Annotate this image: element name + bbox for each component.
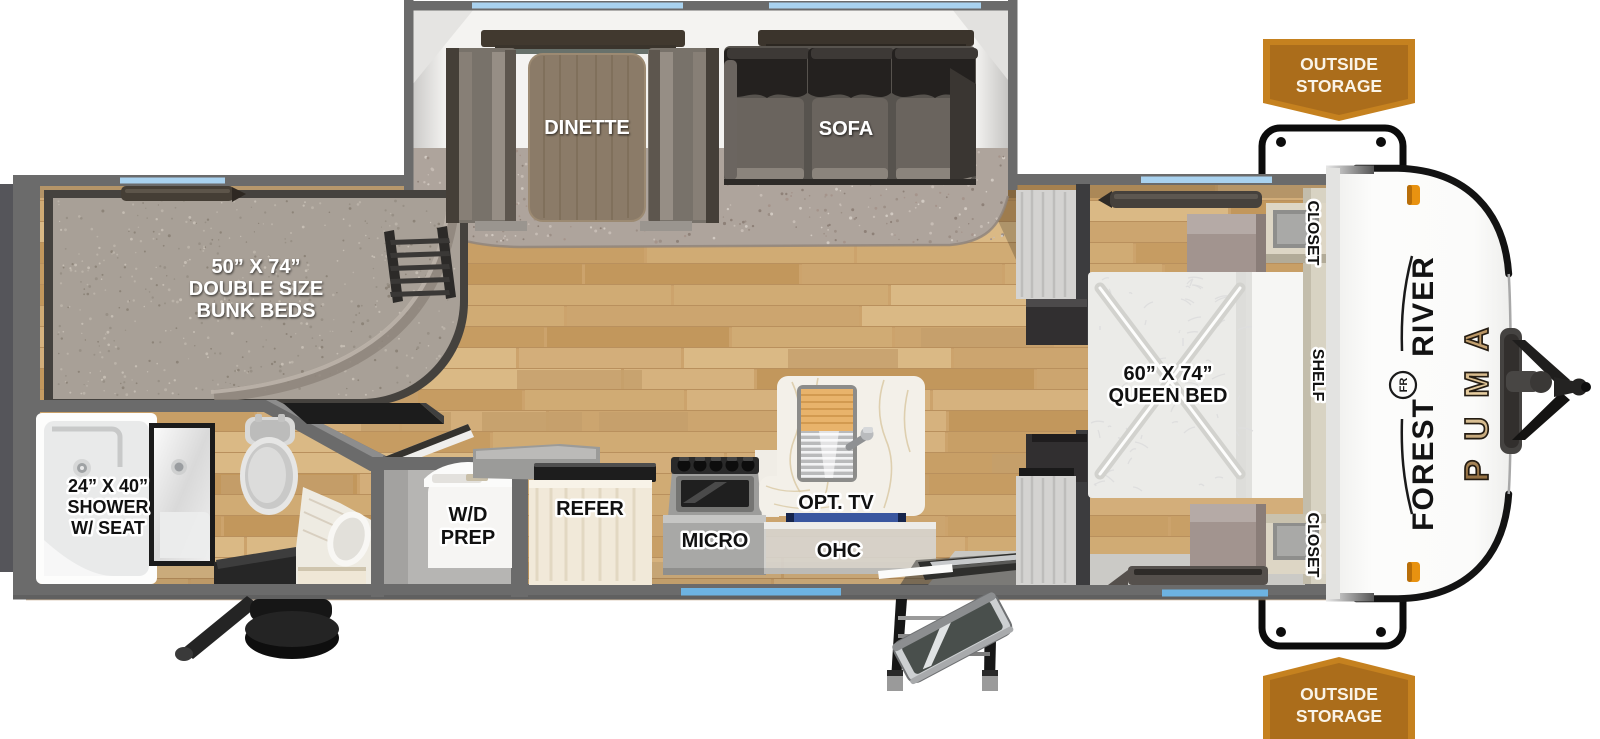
svg-text:MICRO: MICRO bbox=[682, 530, 749, 552]
svg-text:CLOSET: CLOSET bbox=[1304, 201, 1321, 266]
svg-text:SHOWER: SHOWER bbox=[68, 497, 149, 517]
svg-text:OUTSIDE: OUTSIDE bbox=[1300, 684, 1378, 704]
svg-text:OPT. TV: OPT. TV bbox=[798, 492, 874, 514]
svg-text:REFER: REFER bbox=[556, 498, 624, 520]
svg-text:24” X 40”: 24” X 40” bbox=[68, 476, 148, 496]
svg-text:OHC: OHC bbox=[817, 540, 861, 562]
svg-text:50” X 74”: 50” X 74” bbox=[212, 256, 301, 278]
svg-text:FR: FR bbox=[1398, 378, 1410, 393]
svg-text:PUMA: PUMA bbox=[1458, 308, 1495, 481]
svg-text:STORAGE: STORAGE bbox=[1296, 76, 1382, 96]
svg-text:OUTSIDE: OUTSIDE bbox=[1300, 54, 1378, 74]
svg-text:60” X 74”: 60” X 74” bbox=[1124, 363, 1213, 385]
svg-text:SOFA: SOFA bbox=[819, 118, 873, 140]
svg-text:BUNK BEDS: BUNK BEDS bbox=[197, 300, 316, 322]
svg-text:DINETTE: DINETTE bbox=[544, 117, 630, 139]
svg-text:W/D: W/D bbox=[449, 504, 488, 526]
svg-text:SHELF: SHELF bbox=[1309, 349, 1326, 402]
svg-text:PREP: PREP bbox=[441, 527, 495, 549]
svg-text:FOREST: FOREST bbox=[1407, 397, 1440, 531]
svg-text:QUEEN BED: QUEEN BED bbox=[1109, 385, 1228, 407]
svg-text:W/ SEAT: W/ SEAT bbox=[71, 518, 145, 538]
svg-text:RIVER: RIVER bbox=[1407, 255, 1440, 357]
svg-text:DOUBLE SIZE: DOUBLE SIZE bbox=[189, 278, 323, 300]
svg-text:STORAGE: STORAGE bbox=[1296, 706, 1382, 726]
svg-text:CLOSET: CLOSET bbox=[1304, 513, 1321, 578]
